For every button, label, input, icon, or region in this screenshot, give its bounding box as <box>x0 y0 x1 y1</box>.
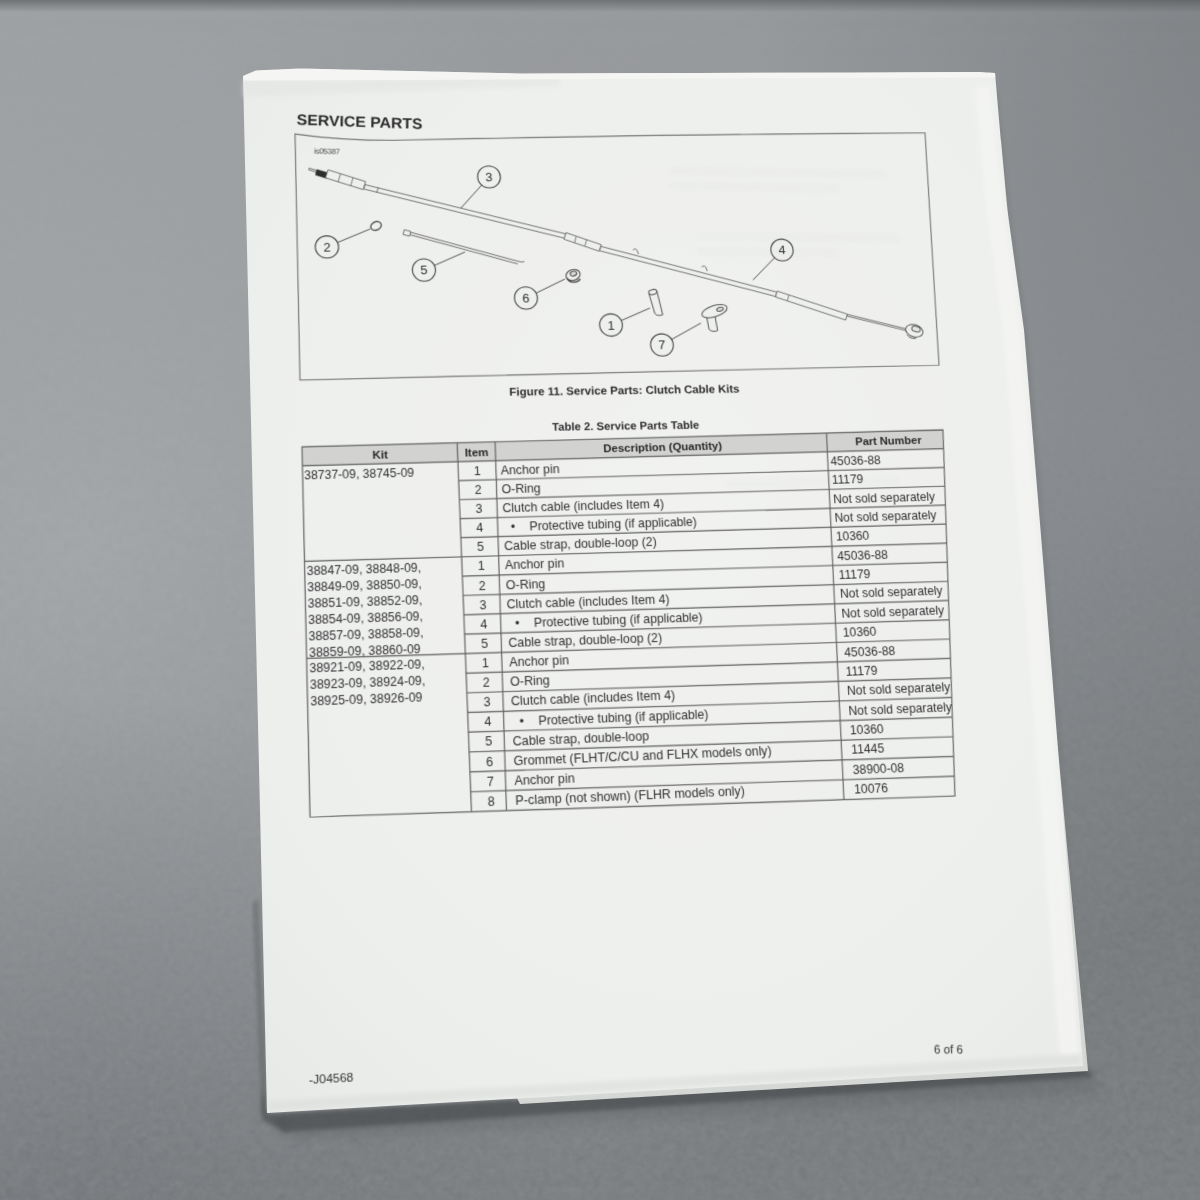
svg-text:1: 1 <box>478 559 486 574</box>
svg-text:O-Ring: O-Ring <box>501 481 541 496</box>
svg-text:Not sold separately: Not sold separately <box>833 489 936 506</box>
svg-text:1: 1 <box>482 656 490 671</box>
svg-text:Clutch cable (includes Item 4): Clutch cable (includes Item 4) <box>506 592 669 612</box>
svg-text:6: 6 <box>522 292 530 306</box>
svg-text:10076: 10076 <box>854 781 889 797</box>
svg-text:3: 3 <box>475 502 483 517</box>
svg-text:45036-88: 45036-88 <box>844 643 896 659</box>
svg-text:7: 7 <box>487 774 495 789</box>
svg-text:Figure 11. Service Parts: Clut: Figure 11. Service Parts: Clutch Cable K… <box>509 384 740 399</box>
svg-text:38925-09, 38926-09: 38925-09, 38926-09 <box>310 691 423 709</box>
svg-text:38921-09, 38922-09,: 38921-09, 38922-09, <box>309 658 425 676</box>
svg-text:Clutch cable (includes Item 4): Clutch cable (includes Item 4) <box>511 688 676 709</box>
svg-text:38900-08: 38900-08 <box>852 760 905 777</box>
svg-text:SERVICE PARTS: SERVICE PARTS <box>296 112 422 133</box>
svg-text:O-Ring: O-Ring <box>505 576 545 592</box>
svg-text:38737-09, 38745-09: 38737-09, 38745-09 <box>304 467 414 483</box>
svg-text:38849-09, 38850-09,: 38849-09, 38850-09, <box>307 578 422 595</box>
svg-text:Protective tubing (if applicab: Protective tubing (if applicable) <box>534 610 703 630</box>
svg-text:Cable strap, double-loop (2): Cable strap, double-loop (2) <box>504 535 657 554</box>
svg-text:3: 3 <box>485 171 493 185</box>
svg-text:6: 6 <box>486 754 494 769</box>
svg-text:1: 1 <box>607 319 615 333</box>
svg-text:Not sold separately: Not sold separately <box>847 680 951 698</box>
svg-text:10360: 10360 <box>835 529 870 544</box>
svg-text:•: • <box>519 713 524 728</box>
svg-text:10360: 10360 <box>849 722 884 738</box>
svg-text:1: 1 <box>474 464 482 478</box>
svg-text:6 of 6: 6 of 6 <box>934 1044 963 1057</box>
svg-text:Anchor pin: Anchor pin <box>505 557 565 573</box>
svg-text:38857-09, 38858-09,: 38857-09, 38858-09, <box>308 626 423 644</box>
svg-text:8: 8 <box>487 794 495 809</box>
svg-text:4: 4 <box>476 521 484 536</box>
svg-text:38854-09, 38856-09,: 38854-09, 38856-09, <box>308 610 423 627</box>
svg-text:5: 5 <box>485 734 493 749</box>
svg-text:-J04568: -J04568 <box>309 1071 354 1087</box>
svg-text:4: 4 <box>484 714 492 729</box>
svg-text:Anchor pin: Anchor pin <box>509 653 569 670</box>
svg-text:45036-88: 45036-88 <box>837 547 889 563</box>
svg-text:Cable strap, double-loop (2): Cable strap, double-loop (2) <box>508 630 662 650</box>
svg-text:Anchor pin: Anchor pin <box>514 771 575 788</box>
svg-text:2: 2 <box>478 578 486 593</box>
svg-text:is05387: is05387 <box>314 147 340 156</box>
svg-text:10360: 10360 <box>842 624 877 640</box>
svg-text:Anchor pin: Anchor pin <box>500 462 559 478</box>
svg-text:Not sold separately: Not sold separately <box>840 584 944 602</box>
svg-text:3: 3 <box>483 695 491 710</box>
svg-text:Not sold separately: Not sold separately <box>841 603 945 621</box>
svg-text:Item: Item <box>465 447 489 460</box>
svg-text:Not sold separately: Not sold separately <box>834 508 937 525</box>
svg-text:5: 5 <box>420 264 428 278</box>
svg-text:11179: 11179 <box>845 663 878 679</box>
svg-text:2: 2 <box>474 483 482 498</box>
svg-text:11179: 11179 <box>838 567 871 582</box>
svg-text:38851-09, 38852-09,: 38851-09, 38852-09, <box>307 594 422 611</box>
svg-text:Kit: Kit <box>372 449 388 462</box>
svg-text:45036-88: 45036-88 <box>830 453 882 468</box>
svg-text:4: 4 <box>480 617 488 632</box>
svg-text:Clutch cable (includes Item 4): Clutch cable (includes Item 4) <box>502 497 664 516</box>
svg-text:Part Number: Part Number <box>855 435 923 449</box>
svg-text:38923-09, 38924-09,: 38923-09, 38924-09, <box>310 674 426 692</box>
svg-text:5: 5 <box>481 636 489 651</box>
svg-text:Not sold separately: Not sold separately <box>848 700 953 718</box>
svg-text:7: 7 <box>658 338 666 352</box>
svg-text:O-Ring: O-Ring <box>510 673 550 689</box>
svg-text:•: • <box>511 520 516 535</box>
svg-text:38847-09, 38848-09,: 38847-09, 38848-09, <box>307 562 422 579</box>
svg-text:3: 3 <box>479 597 487 612</box>
svg-text:5: 5 <box>477 540 485 555</box>
svg-text:•: • <box>515 616 520 631</box>
svg-text:2: 2 <box>482 675 490 690</box>
svg-text:11445: 11445 <box>851 741 885 757</box>
svg-text:Table 2. Service Parts Table: Table 2. Service Parts Table <box>552 420 700 434</box>
svg-text:Protective tubing (if applicab: Protective tubing (if applicable) <box>529 515 697 534</box>
svg-text:2: 2 <box>323 240 331 254</box>
svg-text:Cable strap, double-loop: Cable strap, double-loop <box>512 728 649 748</box>
